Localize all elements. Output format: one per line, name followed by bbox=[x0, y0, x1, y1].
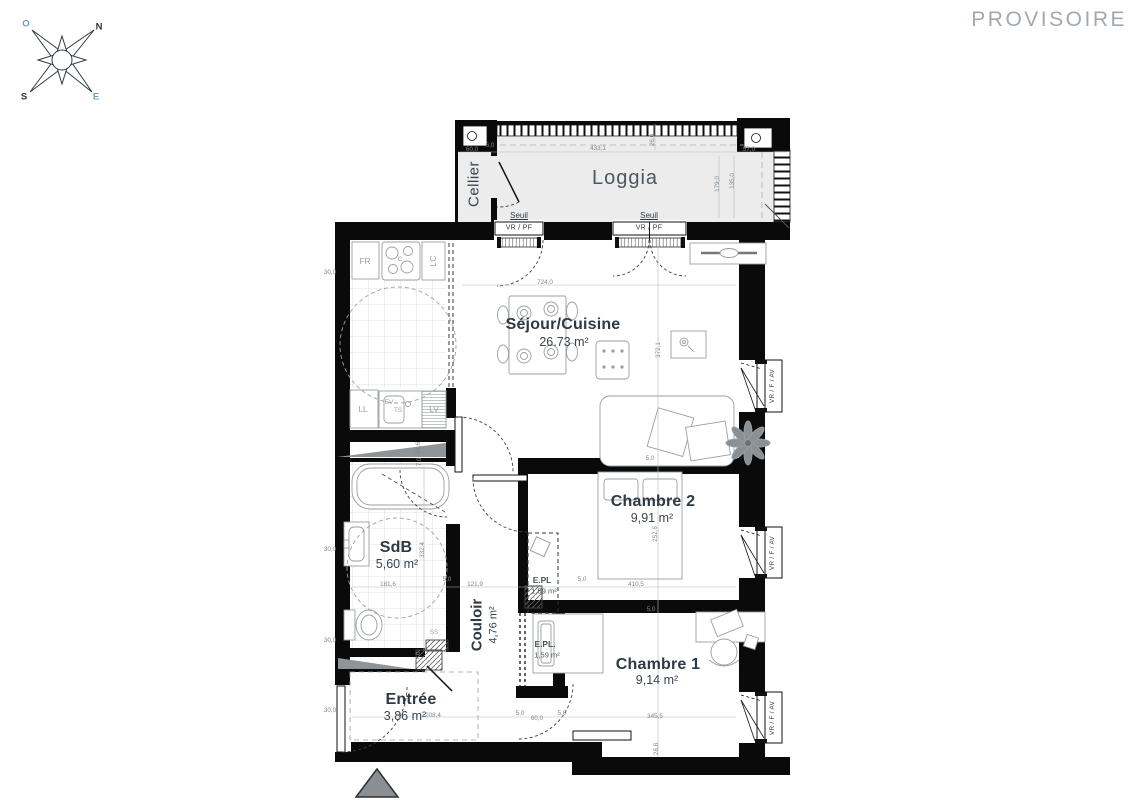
dimension-label: 345,5 bbox=[647, 714, 663, 720]
fridge-label: FR bbox=[359, 257, 370, 266]
room-label-sdb: SdB bbox=[380, 540, 413, 556]
floor-plan-drawing bbox=[0, 0, 1137, 800]
dimension-label: 410,5 bbox=[628, 582, 644, 588]
washer-label: LL bbox=[358, 405, 367, 414]
seuil-label-left: Seuil bbox=[510, 212, 528, 220]
dimension-label: 433,1 bbox=[590, 146, 606, 152]
towel-rail-label: SS bbox=[430, 630, 439, 636]
room-area-entree: 3,86 m² bbox=[384, 710, 426, 723]
dimension-label: 34,6 bbox=[416, 442, 422, 454]
room-label-couloir: Couloir bbox=[470, 599, 485, 652]
room-label-epl-upper: E.PL bbox=[533, 576, 552, 584]
room-label-sejour: Séjour/Cuisine bbox=[506, 317, 621, 333]
room-label-loggia: Loggia bbox=[592, 168, 658, 188]
dimension-label: 60,0 bbox=[466, 147, 478, 153]
dimension-label: 30,0 bbox=[324, 547, 336, 553]
dimension-label: 7,0 bbox=[417, 458, 423, 467]
room-area-epl-lower: 1,59 m² bbox=[534, 651, 559, 659]
room-area-chambre1: 9,14 m² bbox=[636, 674, 678, 687]
compass-west-label: O bbox=[22, 19, 29, 29]
living-furniture bbox=[498, 243, 771, 466]
dimension-label: 5,0 bbox=[647, 607, 656, 613]
dishwasher-label: LV bbox=[429, 405, 439, 414]
threshold-type-left: VR / PF bbox=[506, 225, 533, 232]
seuil-label-right: Seuil bbox=[640, 212, 658, 220]
dimension-label: 121,9 bbox=[467, 582, 483, 588]
plant bbox=[726, 421, 770, 465]
dimension-label: 724,0 bbox=[537, 280, 553, 286]
compass-east-label: E bbox=[93, 92, 99, 102]
dimension-label: 5,0 bbox=[646, 456, 655, 462]
ts-label: TS bbox=[394, 408, 402, 414]
room-label-entree: Entrée bbox=[386, 692, 437, 708]
room-area-sejour: 26.73 m² bbox=[539, 336, 588, 349]
dimension-label: 30,0 bbox=[324, 270, 336, 276]
dimension-label: 208,4 bbox=[425, 713, 441, 719]
dimension-label: 6,0 bbox=[486, 143, 495, 149]
compass-south-label: S bbox=[21, 92, 27, 102]
room-area-chambre2: 9,91 m² bbox=[631, 512, 673, 525]
dimension-label: 181,6 bbox=[380, 582, 396, 588]
dimension-label: 57,0 bbox=[743, 147, 755, 153]
dimension-label: 5,0 bbox=[558, 711, 567, 717]
window-label-chambre2: VR / F / AV bbox=[770, 536, 776, 570]
room-label-cellier: Cellier bbox=[467, 161, 482, 207]
cooktop-label: C bbox=[398, 257, 403, 263]
dimension-label: 252,6 bbox=[653, 526, 659, 542]
threshold-type-right: VR / PF bbox=[636, 225, 663, 232]
dimension-label: 332,4 bbox=[420, 542, 426, 558]
lc-label: LC bbox=[429, 256, 438, 267]
provisoire-watermark: PROVISOIRE bbox=[971, 8, 1127, 32]
entrance-arrow bbox=[356, 769, 398, 797]
dimension-label: 179,0 bbox=[715, 176, 721, 192]
room-label-chambre1: Chambre 1 bbox=[616, 657, 701, 673]
dimension-label: 135,0 bbox=[730, 173, 736, 189]
room-area-couloir: 4,76 m² bbox=[489, 606, 500, 643]
dimension-label: 372,1 bbox=[656, 342, 662, 358]
dimension-label: 26,0 bbox=[650, 134, 656, 146]
dimension-label: 30,0 bbox=[324, 638, 336, 644]
dimension-label: 5,0 bbox=[516, 711, 525, 717]
window-label-sejour: VR / F / AV bbox=[770, 369, 776, 403]
window-label-chambre1: VR / F / AV bbox=[770, 701, 776, 735]
dimension-label: 5,0 bbox=[443, 577, 452, 583]
floor-plan-page: O N S E PROVISOIRE Loggia Cellier Séjour… bbox=[0, 0, 1137, 800]
room-area-sdb: 5,60 m² bbox=[376, 558, 418, 571]
dimension-label: 5,0 bbox=[578, 577, 587, 583]
room-area-epl-upper: 1,59 m² bbox=[531, 587, 556, 595]
dimension-label: 30,0 bbox=[324, 708, 336, 714]
sink-label: EV bbox=[385, 400, 394, 406]
room-label-chambre2: Chambre 2 bbox=[611, 494, 696, 510]
dimension-label: 28,8 bbox=[654, 743, 660, 755]
dimension-label: 60,0 bbox=[531, 716, 543, 722]
room-label-epl-lower: E.PL. bbox=[535, 640, 556, 648]
compass-north-label: N bbox=[96, 22, 103, 32]
dimension-label: 7,0 bbox=[416, 652, 422, 661]
